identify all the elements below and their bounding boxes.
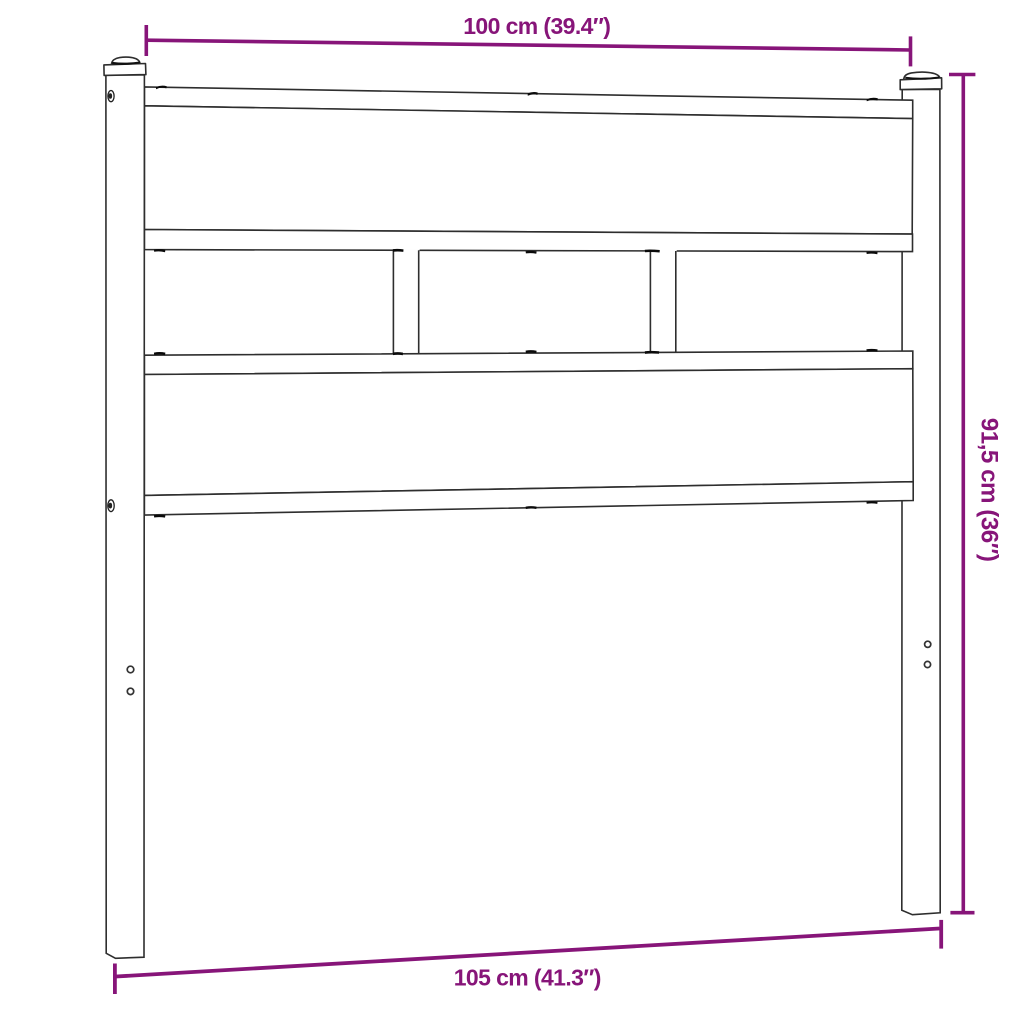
svg-text:105 cm (41.3″): 105 cm (41.3″) bbox=[454, 964, 601, 990]
svg-text:91,5 cm (36″): 91,5 cm (36″) bbox=[976, 418, 1003, 562]
svg-text:100 cm (39.4″): 100 cm (39.4″) bbox=[463, 13, 610, 39]
